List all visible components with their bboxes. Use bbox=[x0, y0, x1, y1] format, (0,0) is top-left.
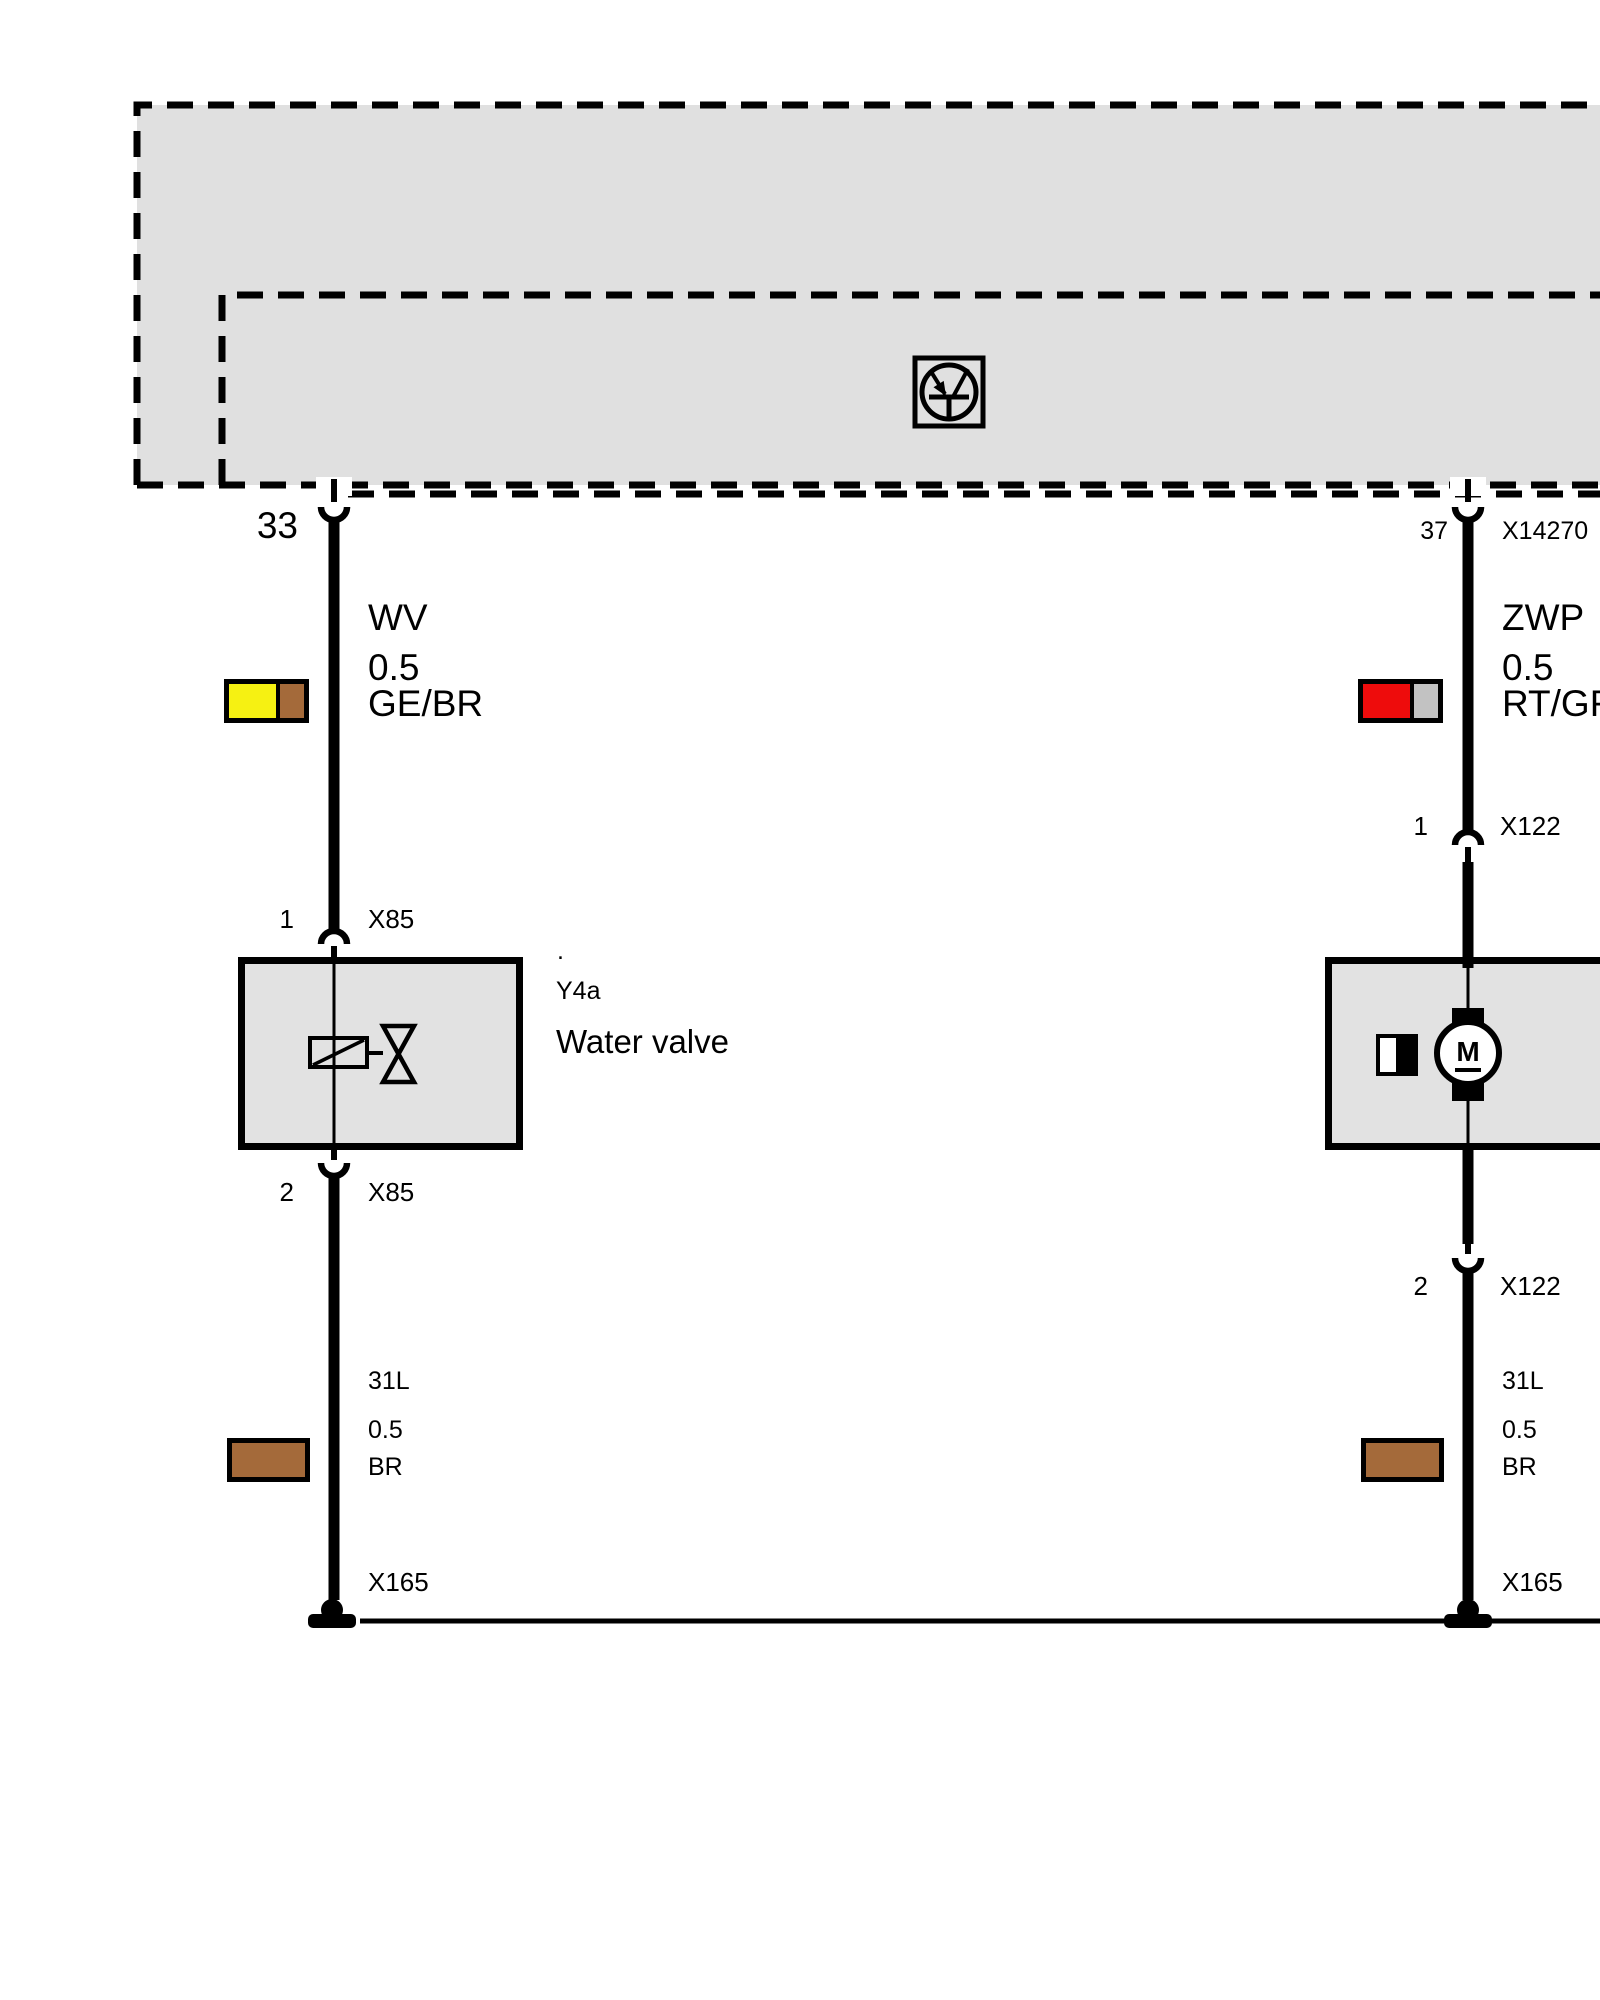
connector-x165-left-label: X165 bbox=[368, 1568, 429, 1596]
module-box-inner-border bbox=[222, 295, 1600, 494]
module-pin-37-label: 37 bbox=[1408, 518, 1448, 545]
connector-x122-2-label: X122 bbox=[1500, 1272, 1561, 1300]
component-id-label: Y4a bbox=[556, 978, 600, 1005]
connector-x14270-label: X14270 bbox=[1502, 518, 1588, 545]
swatch-red bbox=[1363, 684, 1410, 718]
wiring-diagram-page: { "module": { "pin_left": "33", "pin_rig… bbox=[0, 0, 1600, 2000]
ground-color-right-label: BR bbox=[1502, 1454, 1537, 1481]
wire-zwp-size: 0.5 bbox=[1502, 648, 1553, 688]
component-dot-label: . bbox=[557, 938, 564, 965]
ground-color-left-label: BR bbox=[368, 1454, 403, 1481]
wire-zwp-label: ZWP bbox=[1502, 598, 1584, 638]
swatch-gray bbox=[1414, 684, 1438, 718]
output-stage-transistor-icon bbox=[915, 358, 983, 426]
swatch-brown bbox=[1366, 1443, 1439, 1477]
wire-color-swatch-br-right bbox=[1361, 1438, 1444, 1482]
motor-m-label: M bbox=[1452, 1036, 1484, 1068]
wire-zwp-color: RT/GR bbox=[1502, 684, 1600, 724]
connector-socket bbox=[1455, 507, 1481, 520]
wire-color-swatch-rt-gr bbox=[1358, 679, 1443, 723]
wire-wv-size: 0.5 bbox=[368, 648, 419, 688]
connector-x85-2-pin-label: 2 bbox=[266, 1178, 294, 1206]
connector-x85-2-label: X85 bbox=[368, 1178, 414, 1206]
motor-terminal-bottom bbox=[1452, 1083, 1484, 1101]
valve-bowtie-symbol bbox=[383, 1026, 414, 1082]
swatch-brown bbox=[280, 684, 304, 718]
connector-x122-1-label: X122 bbox=[1500, 812, 1561, 840]
connector-socket bbox=[321, 507, 347, 520]
wire-wv-label: WV bbox=[368, 598, 428, 638]
wiring-svg bbox=[0, 0, 1600, 2000]
connector-x122-1-pin-label: 1 bbox=[1400, 812, 1428, 840]
connector-x122-2-pin-label: 2 bbox=[1400, 1272, 1428, 1300]
module-pin-33-label: 33 bbox=[238, 506, 298, 546]
swatch-yellow bbox=[229, 684, 276, 718]
connector-x122-1-socket bbox=[1455, 832, 1481, 845]
swatch-brown bbox=[232, 1443, 305, 1477]
wire-color-swatch-br-left bbox=[227, 1438, 310, 1482]
ground-circuit-right-label: 31L bbox=[1502, 1368, 1544, 1395]
connector-x85-1-label: X85 bbox=[368, 905, 414, 933]
ground-size-left-label: 0.5 bbox=[368, 1417, 403, 1444]
connector-x85-1-pin-label: 1 bbox=[266, 905, 294, 933]
wire-wv-color: GE/BR bbox=[368, 684, 483, 724]
ground-circuit-left-label: 31L bbox=[368, 1368, 410, 1395]
wire-color-swatch-ge-br bbox=[224, 679, 309, 723]
connector-x85-1-socket bbox=[321, 931, 347, 944]
motor-m-underline bbox=[1455, 1068, 1481, 1072]
ground-size-right-label: 0.5 bbox=[1502, 1417, 1537, 1444]
connector-x165-right-label: X165 bbox=[1502, 1568, 1563, 1596]
component-name-label: Water valve bbox=[556, 1024, 729, 1060]
